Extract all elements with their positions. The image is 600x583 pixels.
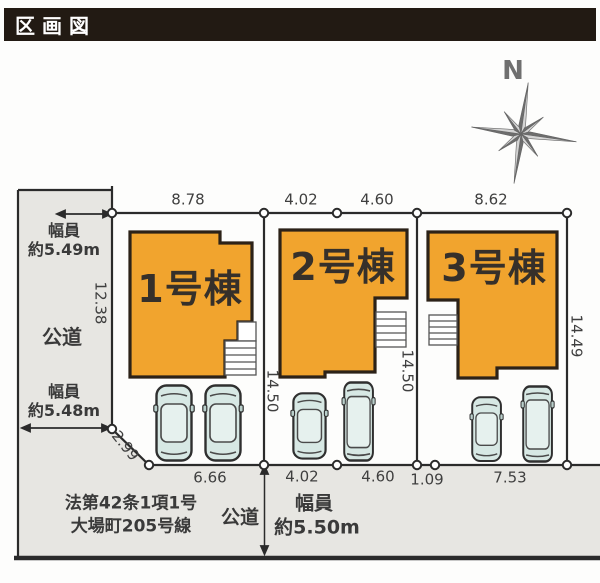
car-top-view: [470, 397, 503, 461]
building-1-stairs: [225, 341, 256, 375]
plot-map-page: 区画図: [0, 0, 600, 583]
parked-cars: [154, 383, 554, 462]
compass-rose-icon: [465, 76, 584, 192]
dim-top-2: 4.02: [284, 193, 317, 208]
car-top-view: [521, 387, 554, 462]
dim-bottom-4: 1.09: [410, 473, 443, 488]
dim-bottom-3: 4.60: [361, 470, 394, 485]
bottom-road-width-line2: 約5.50m: [274, 519, 360, 538]
dim-top-4: 8.62: [474, 193, 507, 208]
car-top-view: [203, 386, 243, 461]
building-2-label: 2号棟: [290, 248, 395, 286]
left-road-width-bottom-line2: 約5.48m: [28, 403, 100, 419]
car-top-view: [154, 386, 194, 461]
bottom-road-name: 公道: [221, 509, 259, 528]
building-3-label: 3号棟: [441, 249, 546, 287]
dim-bottom-2: 4.02: [285, 470, 318, 485]
building-1-landing: [238, 322, 256, 341]
compass-north-label: N: [502, 58, 524, 84]
road-law-line1: 法第42条1項1号: [65, 496, 197, 513]
dim-top-1: 8.78: [171, 193, 204, 208]
building-2-stairs: [376, 312, 406, 347]
dim-plot2-left: 14.50: [265, 370, 280, 413]
car-top-view: [291, 393, 328, 458]
dim-plot3-right: 14.49: [569, 315, 584, 358]
left-road-width-top-line2: 約5.49m: [28, 242, 100, 258]
dim-top-3: 4.60: [360, 193, 393, 208]
dim-bottom-5: 7.53: [493, 471, 526, 486]
bottom-road-width-line1: 幅員: [295, 495, 333, 514]
left-road-width-bottom-line1: 幅員: [48, 384, 80, 400]
building-1-label: 1号棟: [137, 270, 242, 308]
dim-left-boundary: 12.38: [93, 282, 108, 325]
road-law-line2: 大場町205号線: [71, 519, 192, 536]
dim-bottom-1: 6.66: [193, 471, 226, 486]
car-top-view: [342, 383, 375, 461]
left-road-width-top-line1: 幅員: [48, 223, 80, 239]
building-3-stairs: [429, 315, 457, 345]
dim-plot2-right: 14.50: [400, 350, 415, 393]
left-road-name: 公道: [42, 327, 82, 347]
